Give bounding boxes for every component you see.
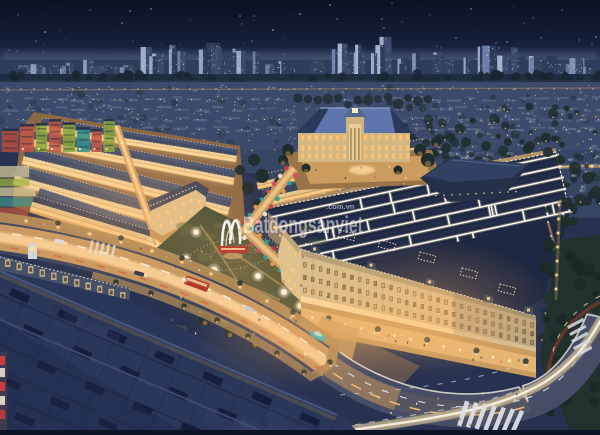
svg-text:.com.vn: .com.vn [326, 202, 355, 211]
svg-text:Batdongsanviet: Batdongsanviet [243, 212, 363, 239]
